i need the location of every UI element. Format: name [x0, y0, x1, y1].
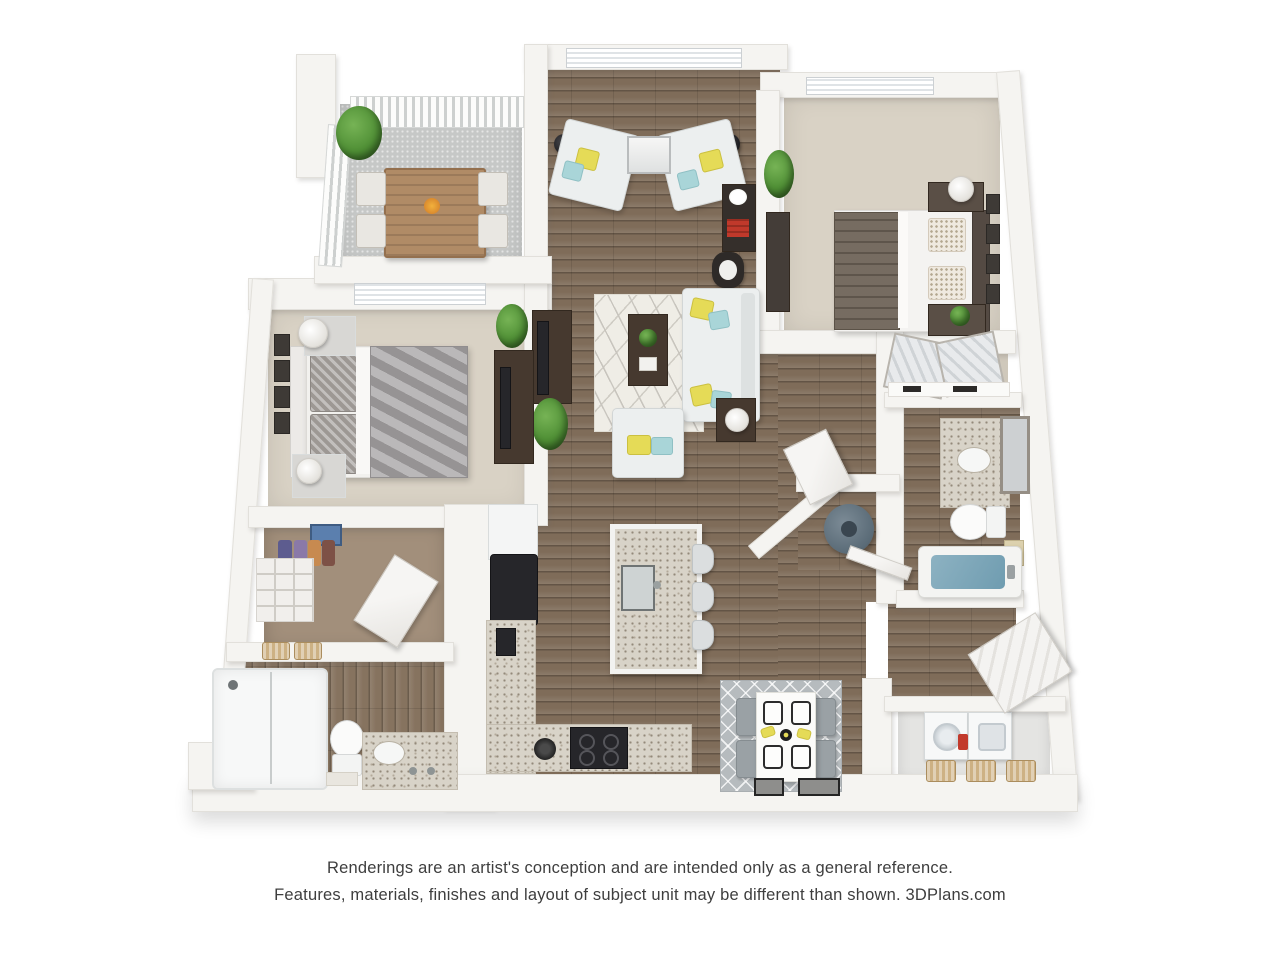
- wall-dining-entry: [862, 678, 892, 784]
- toilet-tank: [986, 506, 1006, 538]
- closet2-shelf: [888, 382, 1010, 397]
- storage-basket: [262, 642, 290, 660]
- patio-chair: [478, 172, 508, 206]
- master-vanity: [362, 732, 458, 790]
- disclaimer-text: Renderings are an artist's conception an…: [0, 855, 1280, 909]
- burner: [603, 750, 619, 766]
- cooktop: [570, 727, 628, 769]
- coffee-table: [628, 314, 668, 386]
- vanity-faucet: [409, 767, 417, 775]
- island-faucet: [653, 581, 661, 589]
- placemat-tray: [798, 778, 840, 796]
- place-setting-plate: [791, 745, 811, 769]
- place-setting-plate: [763, 745, 783, 769]
- burner: [579, 750, 595, 766]
- shower-head: [228, 680, 238, 690]
- media-console: [532, 310, 572, 404]
- centerpiece-bowl: [780, 729, 792, 741]
- vanity-sink: [957, 447, 991, 473]
- closet-shelf-unit: [256, 558, 314, 622]
- wall-art-frame: [274, 386, 290, 408]
- wall-art-frame: [986, 224, 1000, 244]
- console-table: [627, 136, 671, 174]
- wall-art-frame: [274, 412, 290, 434]
- window-bedroom2: [806, 77, 934, 95]
- bar-stool: [692, 620, 714, 650]
- tub-faucet: [1007, 565, 1015, 579]
- kitchen-upper-cabinet: [488, 504, 538, 560]
- bar-stool: [692, 582, 714, 612]
- wall-master-closet: [248, 506, 452, 528]
- place-setting-plate: [763, 701, 783, 725]
- toilet: [330, 720, 364, 758]
- wall-balcony-bottom: [314, 256, 552, 284]
- water-heater-cap: [841, 521, 857, 537]
- bedroom2-plant: [764, 150, 794, 198]
- bar-stool: [692, 544, 714, 574]
- living-room-plant: [532, 398, 568, 450]
- wall-closet-bath1: [226, 642, 454, 662]
- leaning-mirror: [1000, 416, 1030, 494]
- wall-art-frame: [986, 284, 1000, 304]
- bookshelf: [722, 184, 756, 252]
- end-table: [716, 398, 756, 442]
- throw-pillow-yellow: [698, 148, 724, 173]
- refrigerator: [490, 554, 538, 626]
- burner: [579, 734, 595, 750]
- toilet: [950, 504, 990, 540]
- master-lamp: [296, 458, 322, 484]
- bedroom2-dresser: [766, 212, 790, 312]
- napkin-yellow: [796, 727, 812, 740]
- balcony-plant: [336, 106, 382, 160]
- bathtub-water: [931, 555, 1005, 589]
- bedroom2-nightstand-plant: [950, 306, 970, 326]
- master-plant: [496, 304, 528, 348]
- floor-plan-rendering: Renderings are an artist's conception an…: [0, 0, 1280, 960]
- laundry-basket: [1006, 760, 1036, 782]
- laundry-basket: [926, 760, 956, 782]
- throw-pillow-teal: [708, 309, 731, 330]
- placemat-tray: [754, 778, 784, 796]
- dining-table: [756, 692, 816, 782]
- shelf-items: [953, 386, 977, 392]
- table-lamp: [725, 408, 749, 432]
- vanity-faucet: [427, 767, 435, 775]
- disclaimer-line-2: Features, materials, finishes and layout…: [0, 882, 1280, 909]
- shelf-items: [903, 386, 921, 392]
- island-sink: [621, 565, 655, 611]
- accent-chair: [612, 408, 684, 478]
- washer-door: [933, 723, 961, 751]
- burner: [603, 734, 619, 750]
- wall-laundry-top: [884, 696, 1066, 712]
- dryer-door: [978, 723, 1006, 751]
- kitchen-island: [610, 524, 702, 674]
- throw-pillow-teal: [561, 160, 585, 182]
- wall-art-frame: [986, 254, 1000, 274]
- throw-pillow-teal: [651, 437, 673, 455]
- vanity-sink: [373, 741, 405, 765]
- disclaimer-line-1: Renderings are an artist's conception an…: [0, 855, 1280, 882]
- bedroom2-lamp: [948, 176, 974, 202]
- bed2-pillow: [928, 218, 966, 252]
- laundry-basket: [966, 760, 996, 782]
- bed2-sheet-fold: [898, 212, 908, 328]
- bath-mat: [326, 772, 358, 786]
- patio-chair: [478, 214, 508, 248]
- coffee-table-books: [639, 357, 657, 371]
- wall-art-frame: [274, 334, 290, 356]
- accent-stool: [712, 252, 744, 288]
- coffee-maker: [496, 628, 516, 656]
- bed1-duvet: [370, 346, 468, 478]
- stool-cushion: [719, 260, 737, 280]
- patio-chair: [356, 214, 386, 248]
- patio-chair: [356, 172, 386, 206]
- detergent-bottle: [958, 734, 968, 750]
- window-living: [566, 48, 742, 68]
- place-setting-plate: [791, 701, 811, 725]
- storage-basket: [294, 642, 322, 660]
- master-tv: [500, 367, 511, 449]
- throw-pillow-teal: [676, 169, 700, 191]
- wall-art-frame: [986, 194, 1000, 214]
- table-plant: [639, 329, 657, 347]
- walk-in-shower: [212, 668, 328, 790]
- wall-art-frame: [274, 360, 290, 382]
- patio-table-centerpiece: [424, 198, 440, 214]
- shower-glass-divider: [270, 672, 272, 784]
- master-lamp: [298, 318, 328, 348]
- hanging-clothes: [322, 540, 335, 566]
- bed2-pillow: [928, 266, 966, 300]
- dryer: [968, 712, 1012, 760]
- bathtub: [918, 546, 1022, 598]
- master-tv-console: [494, 350, 534, 464]
- white-vase-flowers: [729, 189, 747, 205]
- red-books: [727, 219, 749, 237]
- tv: [537, 321, 549, 395]
- bed2-blanket: [834, 212, 900, 330]
- bed1-pillow: [310, 352, 358, 412]
- throw-pillow-yellow: [627, 435, 651, 455]
- window-master: [354, 283, 486, 305]
- counter-decor: [534, 738, 556, 760]
- napkin-yellow: [760, 725, 776, 739]
